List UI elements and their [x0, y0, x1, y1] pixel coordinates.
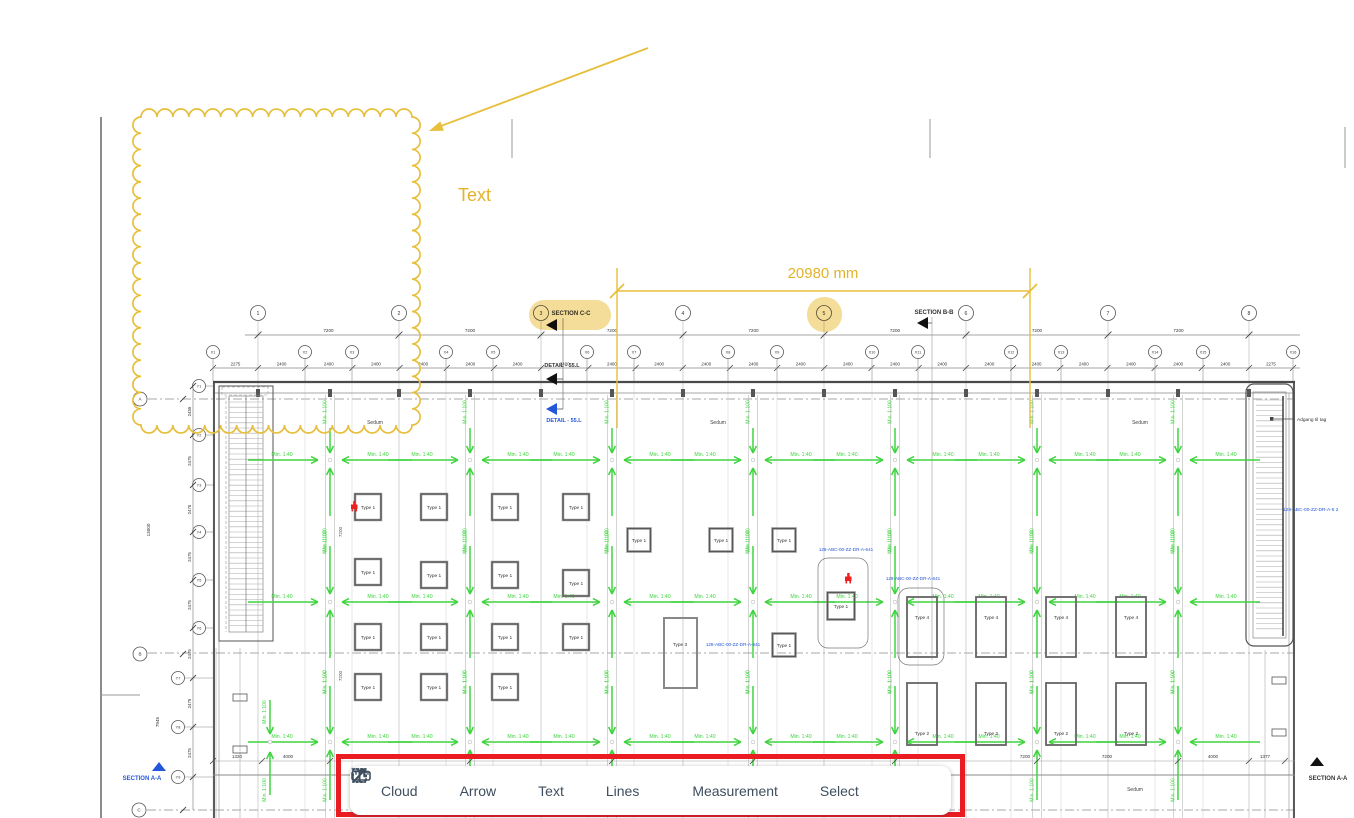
tool-text[interactable]: Text	[529, 783, 564, 799]
toolbar-highlight-box: CloudArrowTextLinesMeasurementSelect	[336, 754, 965, 817]
annotation-app: 7200720072007200720072007200227524002400…	[0, 0, 1354, 818]
text-annotation[interactable]: Text	[458, 185, 491, 206]
tool-label: Select	[820, 783, 859, 799]
tool-select[interactable]: Select	[811, 783, 859, 799]
highlight-annotation[interactable]	[807, 297, 842, 332]
annotation-toolbar: CloudArrowTextLinesMeasurementSelect	[350, 766, 951, 815]
tool-label: Arrow	[460, 783, 497, 799]
tool-lines[interactable]: Lines	[597, 783, 650, 799]
tool-cloud[interactable]: Cloud	[372, 783, 418, 799]
tool-label: Cloud	[381, 783, 418, 799]
arrow-annotation[interactable]	[429, 48, 648, 131]
tool-measurement[interactable]: Measurement	[683, 783, 778, 799]
highlight-annotation[interactable]	[529, 300, 611, 330]
tool-arrow[interactable]: Arrow	[451, 783, 497, 799]
cloud-annotation[interactable]	[133, 109, 420, 433]
tool-label: Text	[538, 783, 564, 799]
measurement-annotation-label[interactable]: 20980 mm	[758, 265, 888, 282]
tool-label: Measurement	[692, 783, 778, 799]
tool-label: Lines	[606, 783, 639, 799]
measurement-annotation[interactable]	[610, 268, 1037, 428]
markup-annotation-layer	[0, 0, 1354, 818]
